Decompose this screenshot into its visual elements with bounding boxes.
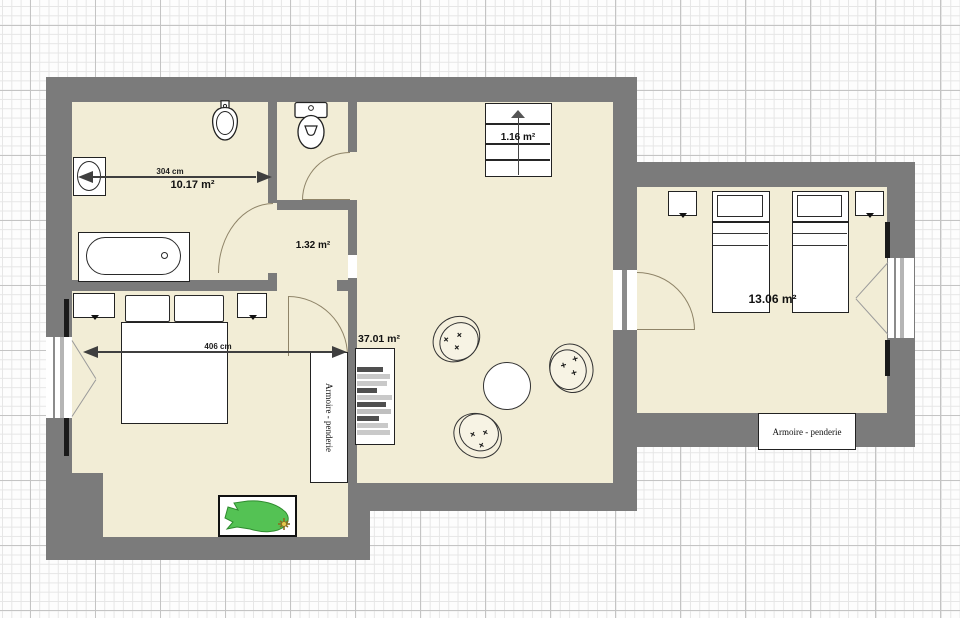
window-end-tick bbox=[64, 418, 69, 456]
door-right-bedroom[interactable] bbox=[613, 270, 637, 330]
bathtub-drain bbox=[161, 252, 168, 259]
wall-segment bbox=[348, 483, 370, 560]
dimension-line-304 bbox=[90, 176, 256, 178]
bedroom-left-dim-label: 406 cm bbox=[188, 342, 248, 351]
plant-box[interactable] bbox=[218, 495, 297, 537]
pillow bbox=[174, 295, 224, 322]
dimension-arrowhead bbox=[332, 346, 347, 358]
nightstand[interactable] bbox=[668, 191, 697, 216]
floorplan-canvas: 1.16 m² 304 cm 10.17 m² 1.32 m² Armoire bbox=[0, 0, 960, 618]
pillow bbox=[717, 195, 763, 217]
dimension-arrowhead bbox=[78, 171, 93, 183]
bathroom-area-label: 10.17 m² bbox=[155, 179, 230, 191]
double-bed[interactable] bbox=[121, 322, 228, 424]
window-end-tick bbox=[885, 222, 890, 258]
nightstand[interactable] bbox=[855, 191, 884, 216]
dimension-arrowhead bbox=[83, 346, 98, 358]
wall-segment bbox=[637, 162, 915, 187]
wall-segment bbox=[277, 200, 357, 210]
plant-icon bbox=[220, 497, 295, 535]
bathroom-dim-label: 304 cm bbox=[140, 167, 200, 176]
wardrobe-left[interactable]: Armoire - penderie bbox=[310, 352, 348, 483]
wall-segment bbox=[348, 483, 637, 511]
doorway-gap bbox=[277, 280, 337, 291]
window-end-tick bbox=[885, 340, 890, 376]
stairs-direction-line bbox=[518, 118, 519, 175]
door-slab bbox=[622, 270, 627, 330]
wardrobe-left-label: Armoire - penderie bbox=[324, 383, 334, 452]
window-end-tick bbox=[64, 299, 69, 337]
round-table[interactable] bbox=[483, 362, 531, 410]
bookshelf[interactable] bbox=[355, 348, 395, 445]
wall-segment bbox=[46, 537, 370, 560]
pedestal-sink[interactable] bbox=[210, 100, 240, 142]
wall-segment bbox=[337, 280, 357, 291]
bedroom-right-area-label: 13.06 m² bbox=[735, 292, 810, 306]
wardrobe-right[interactable]: Armoire - penderie bbox=[758, 413, 856, 450]
wall-segment bbox=[46, 77, 637, 102]
dimension-line-406 bbox=[95, 351, 335, 353]
window-left[interactable] bbox=[46, 337, 72, 418]
pillow bbox=[797, 195, 842, 217]
nightstand[interactable] bbox=[73, 293, 115, 318]
stairs-up-arrow-icon bbox=[511, 110, 525, 118]
window-right[interactable] bbox=[888, 258, 914, 338]
stairs-area-label: 1.16 m² bbox=[488, 132, 548, 143]
toilet[interactable] bbox=[292, 100, 330, 152]
living-area-label: 37.01 m² bbox=[350, 333, 408, 345]
dimension-arrowhead bbox=[257, 171, 272, 183]
pillow bbox=[125, 295, 170, 322]
closet-area-label: 1.32 m² bbox=[288, 240, 338, 251]
single-bed-headboard[interactable] bbox=[792, 191, 849, 222]
wardrobe-right-label: Armoire - penderie bbox=[773, 427, 842, 437]
single-bed-headboard[interactable] bbox=[712, 191, 770, 222]
nightstand[interactable] bbox=[237, 293, 267, 318]
bathtub[interactable] bbox=[78, 232, 190, 282]
doorway-gap bbox=[348, 255, 357, 278]
